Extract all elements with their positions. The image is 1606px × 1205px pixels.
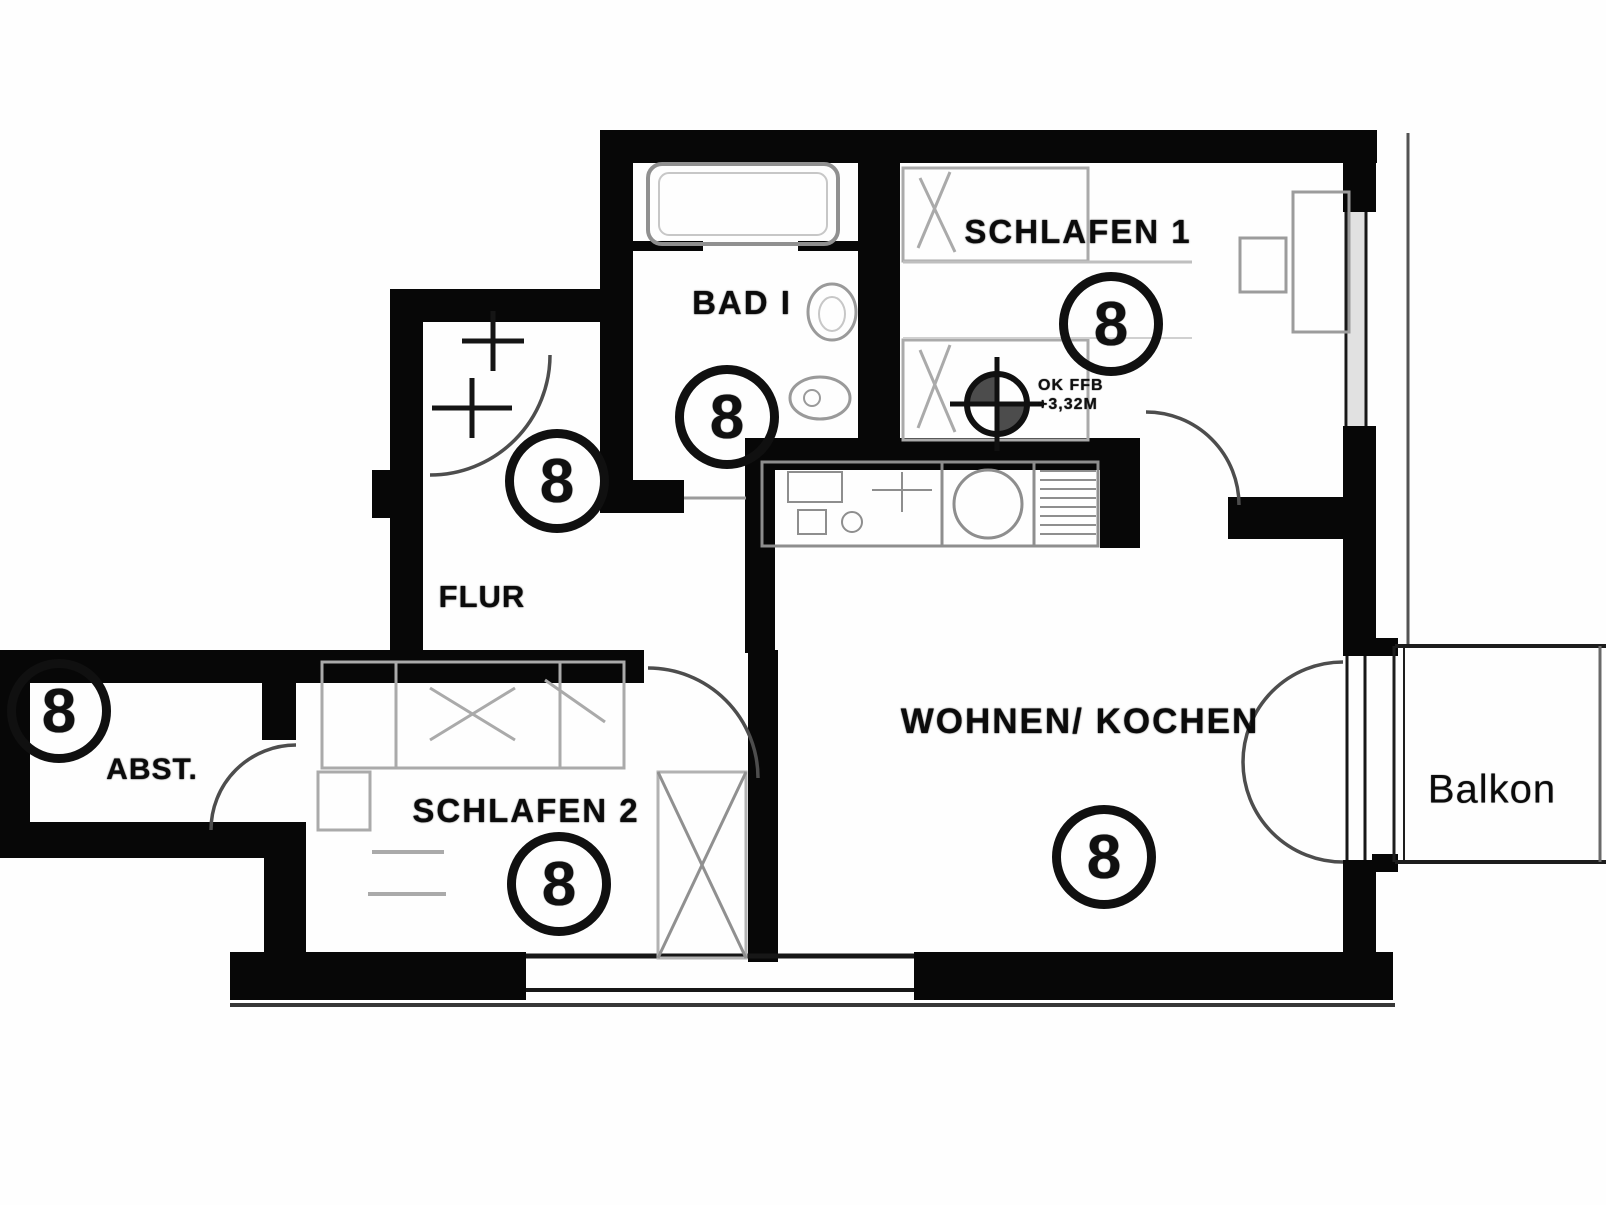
floor-plan: SCHLAFEN 1 BAD I FLUR ABST. SCHLAFEN 2 W… [0,0,1606,1205]
room-label-abst: ABST. [106,753,198,787]
unit-number-badge-schlafen2: 8 [507,832,611,936]
unit-number-badge-schlafen1: 8 [1059,272,1163,376]
room-label-schlafen1: SCHLAFEN 1 [964,213,1191,251]
balcony-outline [1394,646,1606,862]
unit-number-badge-flur: 8 [505,429,609,533]
stove-icon [788,472,842,502]
floor-plan-linework [0,0,1606,1205]
room-label-schlafen2: SCHLAFEN 2 [412,792,639,830]
kitchen-counter [762,462,1098,546]
room-label-flur: FLUR [439,579,526,615]
unit-number-badge-wohnen: 8 [1052,805,1156,909]
bathtub-icon [648,164,838,244]
room-label-wohnen-kochen: WOHNEN/ KOCHEN [901,702,1260,742]
kitchen-sink-icon [954,470,1022,538]
height-note: OK FFB +3,32M [1038,376,1104,414]
height-note-line2: +3,32M [1038,395,1104,414]
room-label-balkon: Balkon [1428,768,1556,813]
desk-icon [1293,192,1349,332]
height-marker-icon [950,357,1044,451]
wardrobe-xbox [658,772,746,958]
entry-door-marks [432,311,524,438]
unit-number-badge-bad: 8 [675,365,779,469]
room-label-bad: BAD I [692,284,792,322]
height-note-line1: OK FFB [1038,376,1104,395]
unit-number-badge-abst: 8 [7,659,111,763]
